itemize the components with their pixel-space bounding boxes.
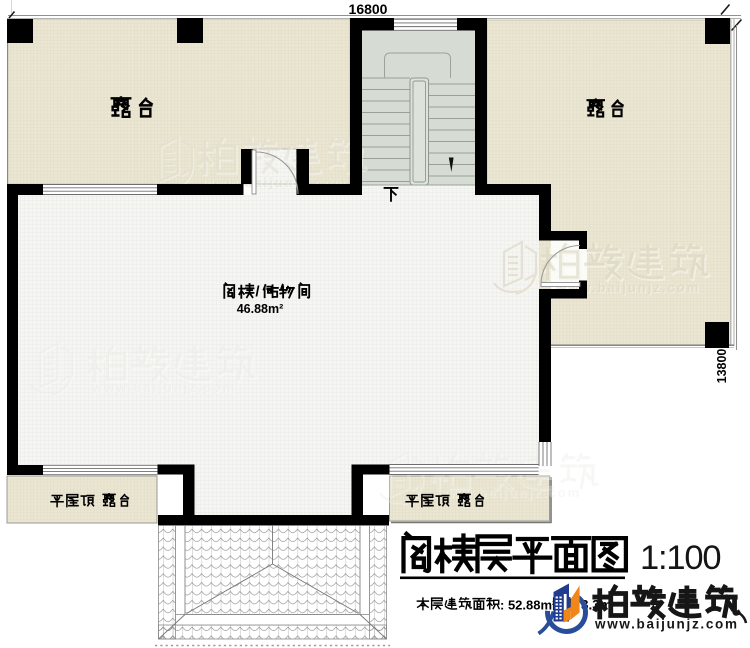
svg-text:1:100: 1:100 <box>640 539 720 577</box>
svg-text:www.baijunjz.com: www.baijunjz.com <box>91 380 236 395</box>
svg-text:www.baijunjz.com: www.baijunjz.com <box>436 485 581 500</box>
svg-text:13800: 13800 <box>715 349 729 384</box>
svg-text:16800: 16800 <box>349 1 388 17</box>
svg-text:: 52.88m²: : 52.88m² <box>500 598 557 613</box>
svg-text:46.88m²: 46.88m² <box>237 302 284 316</box>
svg-text:www.baijunjz.com: www.baijunjz.com <box>594 617 739 632</box>
